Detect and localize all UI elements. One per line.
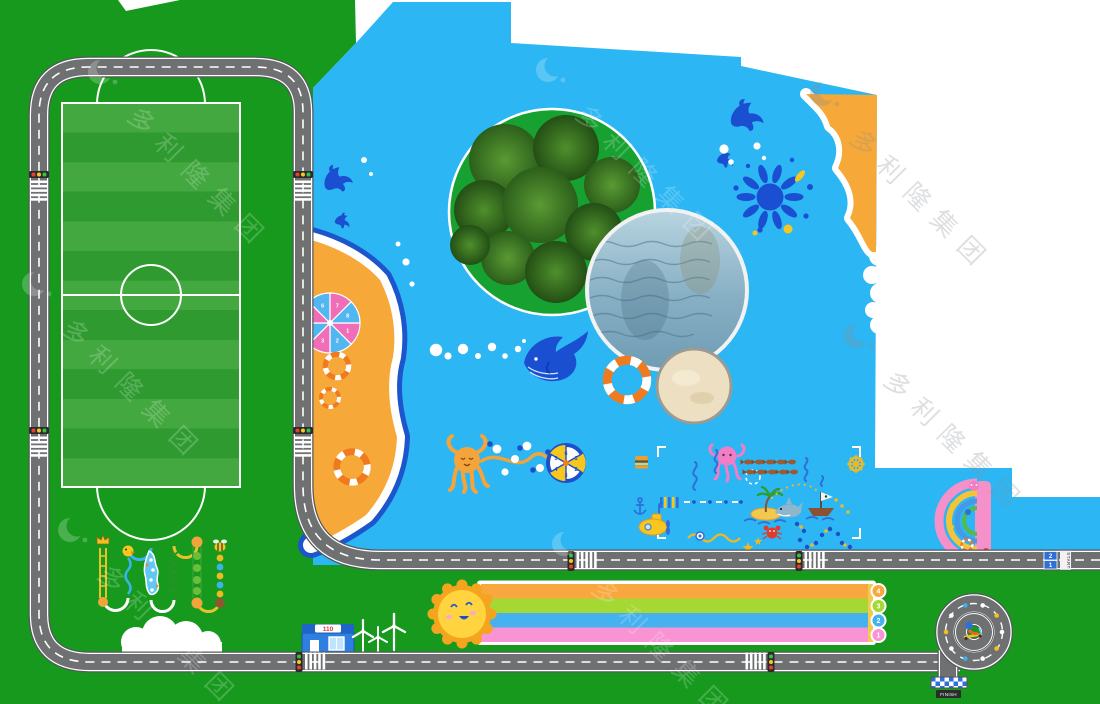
wheel-number: 6 [564, 451, 567, 457]
wheel-number: 1 [574, 456, 577, 462]
traffic-light-icon [796, 551, 803, 571]
lane-badge-number: 1 [877, 633, 881, 640]
umbrella-number: 3 [321, 339, 324, 345]
rainbow-arch-game [939, 481, 991, 561]
police-station-icon: 110 [302, 624, 354, 652]
hamburger-icon [635, 456, 648, 469]
start-label: START [1066, 552, 1071, 569]
traffic-light-icon [296, 652, 303, 672]
umbrella-number: 1 [346, 328, 349, 334]
traffic-light-icon [293, 171, 313, 178]
door [310, 640, 319, 652]
mini-figure [965, 509, 971, 515]
wheel-number: 5 [554, 456, 557, 462]
umbrella-number: 6 [321, 303, 324, 309]
lane-badge-number: 2 [877, 618, 881, 625]
lane-badge-number: 4 [877, 589, 881, 596]
lane-badge-number: 3 [877, 604, 881, 611]
frog-icon [193, 576, 201, 584]
police-sign: 110 [323, 626, 334, 633]
wheel-number: 3 [564, 473, 567, 479]
scene-svg: 1 2 3 4 5 6 7 8 1 2 [0, 0, 1100, 704]
traffic-light-icon [29, 171, 49, 178]
finish-label: FINISH [940, 692, 957, 697]
duck-icon [123, 546, 134, 557]
frog-icon [193, 587, 201, 595]
frog-icon [193, 552, 201, 560]
animal-badge [98, 597, 108, 607]
umbrella-number: 7 [336, 303, 339, 309]
frog-icon [193, 564, 201, 572]
animal-badge [192, 537, 203, 548]
spinner-wheel-icon: 1 2 3 4 5 6 [548, 445, 586, 481]
track-lane-green [481, 599, 868, 614]
wheel-number: 2 [574, 467, 577, 473]
traffic-light-icon [293, 427, 313, 434]
traffic-light-icon [768, 652, 775, 672]
sand-pit-icon [657, 349, 731, 423]
umbrella-number: 8 [346, 314, 349, 320]
umbrella-number: 2 [336, 339, 339, 345]
track-lane-blue [481, 613, 868, 628]
animal-badge [215, 598, 225, 608]
track-lane-orange [481, 584, 868, 599]
playground-plan: 1 2 3 4 5 6 7 8 1 2 [0, 0, 1100, 704]
finish-checker [931, 677, 967, 688]
animal-badge [192, 598, 203, 609]
traffic-light-icon [29, 427, 49, 434]
